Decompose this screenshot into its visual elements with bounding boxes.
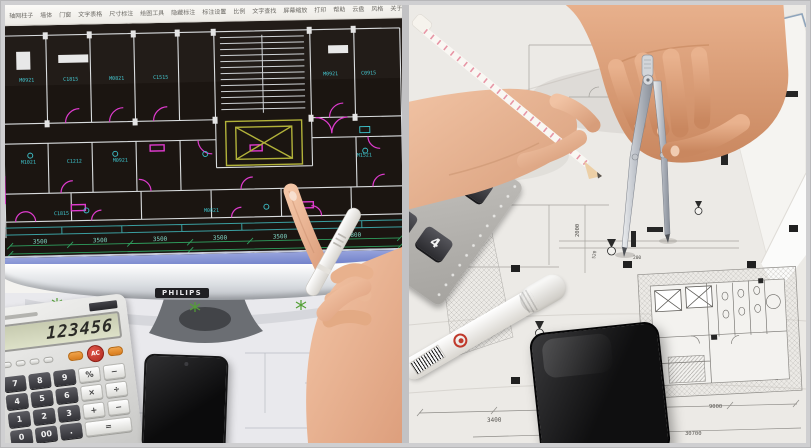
calc-key: + <box>82 401 106 419</box>
toolbar-item: 屏幕缩放 <box>283 5 307 14</box>
equals-key: = <box>84 416 132 437</box>
toolbar-item: 轴网柱子 <box>9 10 33 19</box>
memory-key <box>15 359 26 366</box>
toolbar-item: 帮助 <box>333 5 345 13</box>
calc-key: 9 <box>53 369 77 387</box>
svg-text:C1815: C1815 <box>54 211 69 217</box>
memory-key <box>5 361 12 368</box>
calc-key: 8 <box>28 372 52 390</box>
svg-text:3500: 3500 <box>213 235 228 242</box>
calc-key: − <box>107 398 131 416</box>
svg-text:M0921: M0921 <box>113 158 128 164</box>
smartphone <box>528 321 671 443</box>
monitor-brand-text: PHILIPS <box>162 289 202 297</box>
calc-key: 1 <box>8 411 32 429</box>
stairs <box>668 355 705 383</box>
all-clear-key: AC <box>86 344 105 363</box>
toolbar-item: 文字表格 <box>78 9 102 18</box>
svg-text:3400: 3400 <box>487 417 502 424</box>
phone-camera-dot <box>184 362 188 366</box>
toolbar-item: 比例 <box>233 6 245 15</box>
toolbar-item: 打印 <box>314 5 326 13</box>
svg-text:M1021: M1021 <box>21 160 36 166</box>
monitor-brand-badge: PHILIPS <box>155 288 209 298</box>
photo-divider <box>402 5 409 443</box>
memory-key <box>29 357 40 364</box>
toolbar-item: 尺寸标注 <box>109 8 133 17</box>
calc-key: 2 <box>32 408 56 426</box>
off-key <box>107 346 123 357</box>
cad-screen-drawing: 3500 3500 3500 3500 3500 7800 56900 M092… <box>5 18 402 264</box>
svg-text:3500: 3500 <box>33 238 48 245</box>
svg-text:7800: 7800 <box>347 232 362 239</box>
toolbar-item: 门窗 <box>59 9 71 18</box>
calc-key: . <box>59 422 83 440</box>
right-photo: 3400 9000 30700 2000 520 200 0 0 1 4 <box>409 5 806 443</box>
svg-text:9000: 9000 <box>709 404 722 410</box>
calc-key: 7 <box>5 375 27 393</box>
toolbar-item: 绘图工具 <box>140 7 164 16</box>
calc-key: ÷ <box>105 381 129 399</box>
calculator-keypad: 7 8 9 % − 4 5 6 × ÷ 1 2 3 + − 0 00 . = <box>5 358 143 443</box>
toolbar-item: 墙体 <box>40 10 52 19</box>
smartphone <box>141 354 228 443</box>
toolbar-item: 风格 <box>371 5 383 12</box>
toolbar-item: 隐藏标注 <box>171 7 195 16</box>
calc-key: 6 <box>55 387 79 405</box>
cap-rings <box>518 289 540 315</box>
marker-logo <box>451 331 470 350</box>
stand-hinge <box>179 307 231 331</box>
calc-key: 0 <box>420 142 460 180</box>
calc-key: 0 <box>455 167 495 205</box>
svg-text:200: 200 <box>633 255 641 261</box>
clear-entry-key <box>68 351 84 362</box>
calculator-brand-mark <box>5 311 38 320</box>
calc-key: 00 <box>35 425 59 443</box>
photo-collage-frame: 轴网柱子 墙体 门窗 文字表格 尺寸标注 绘图工具 隐藏标注 标注设置 比例 文… <box>0 0 811 448</box>
calc-key: × <box>80 384 104 402</box>
svg-text:3500: 3500 <box>93 237 108 244</box>
toolbar-item: 文字查找 <box>252 5 276 14</box>
svg-text:2000: 2000 <box>575 224 581 237</box>
svg-text:M1521: M1521 <box>357 152 372 158</box>
memory-key <box>43 356 54 363</box>
calc-key: 0 <box>10 428 34 443</box>
calculator-solar-cell <box>89 300 118 311</box>
blueprint-color-marks <box>377 339 389 350</box>
svg-text:30700: 30700 <box>685 431 702 437</box>
phone-screen-reflection <box>541 333 614 378</box>
toolbar-item: 云盘 <box>352 5 364 13</box>
calc-key: 5 <box>30 390 54 408</box>
calc-key: 3 <box>57 404 81 422</box>
calculator: 123456 AC 7 8 9 % − 4 5 6 × ÷ <box>5 293 144 443</box>
calc-key: 1 <box>409 200 419 238</box>
calc-key: − <box>102 363 126 381</box>
svg-text:3500: 3500 <box>273 233 288 240</box>
calc-key: 4 <box>415 224 455 262</box>
left-photo: 轴网柱子 墙体 门窗 文字表格 尺寸标注 绘图工具 隐藏标注 标注设置 比例 文… <box>5 5 402 443</box>
calc-key: % <box>78 366 102 384</box>
svg-text:C1212: C1212 <box>67 159 82 165</box>
toolbar-item: 关于 <box>390 5 402 12</box>
svg-text:M0821: M0821 <box>204 208 219 214</box>
svg-text:3500: 3500 <box>153 236 168 243</box>
calc-key: 4 <box>5 393 29 411</box>
toolbar-item: 标注设置 <box>202 6 226 15</box>
